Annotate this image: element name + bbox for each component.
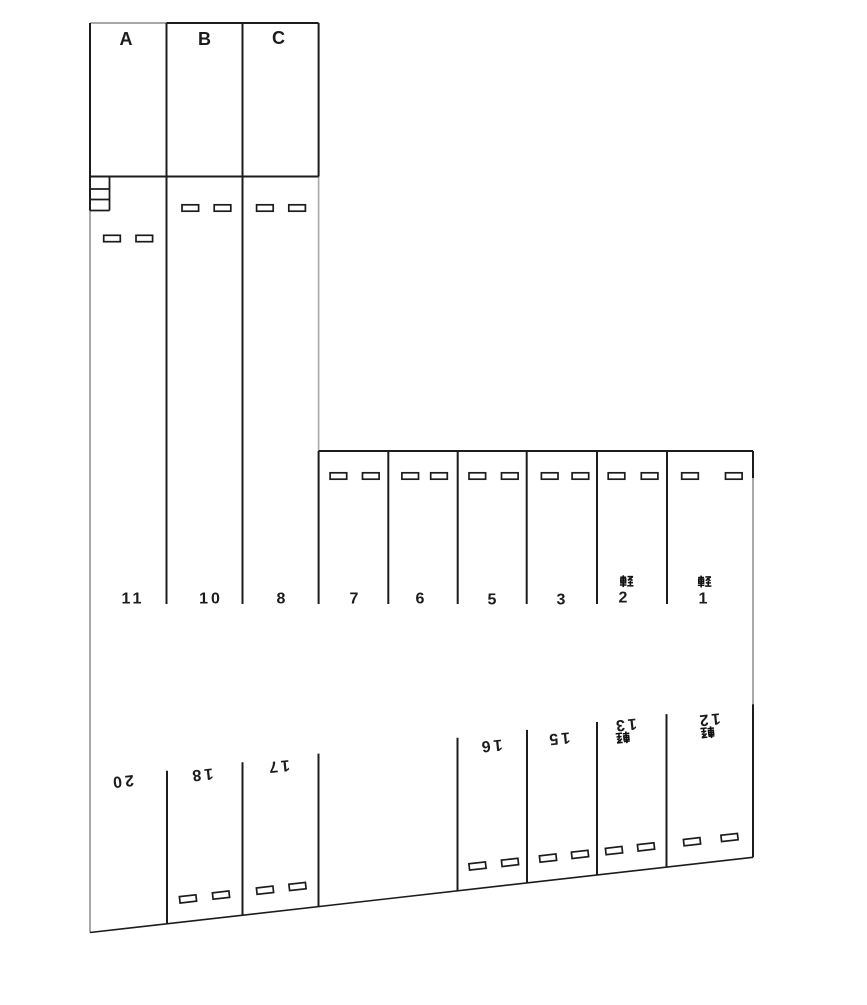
svg-text:11: 11: [122, 590, 145, 607]
svg-text:A: A: [120, 29, 133, 49]
svg-text:13: 13: [612, 715, 637, 734]
svg-text:5: 5: [488, 591, 497, 608]
svg-text:20: 20: [109, 771, 134, 790]
svg-text:2: 2: [619, 589, 628, 606]
svg-text:7: 7: [350, 590, 359, 607]
svg-text:6: 6: [416, 590, 425, 607]
svg-text:12: 12: [696, 709, 721, 728]
svg-text:1: 1: [699, 590, 708, 607]
svg-text:18: 18: [189, 764, 214, 783]
svg-text:3: 3: [557, 591, 566, 608]
svg-text:16: 16: [478, 736, 503, 755]
svg-text:C: C: [272, 28, 285, 48]
svg-text:17: 17: [265, 756, 290, 775]
svg-text:10: 10: [199, 590, 223, 607]
svg-text:8: 8: [277, 590, 286, 607]
svg-text:B: B: [198, 29, 211, 49]
svg-text:15: 15: [546, 728, 571, 747]
